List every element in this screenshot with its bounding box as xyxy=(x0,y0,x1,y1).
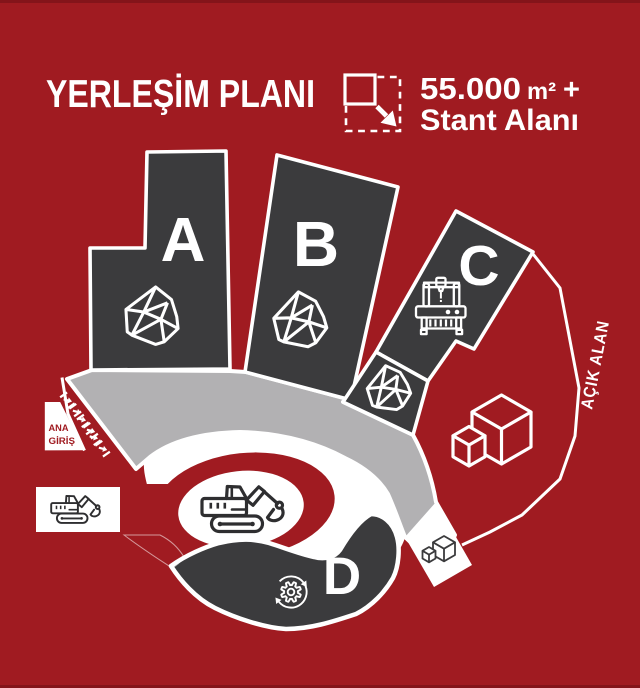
svg-text:55.000: 55.000 xyxy=(420,71,521,106)
svg-text:A: A xyxy=(161,206,206,275)
svg-text:C: C xyxy=(458,234,499,298)
svg-text:YERLEŞİM PLANI: YERLEŞİM PLANI xyxy=(46,73,315,116)
svg-text:m²: m² xyxy=(527,78,556,104)
svg-text:GİRİŞ: GİRİŞ xyxy=(49,436,76,447)
svg-text:ANA: ANA xyxy=(49,423,69,434)
svg-text:+: + xyxy=(563,74,580,106)
svg-text:Stant Alanı: Stant Alanı xyxy=(420,104,579,137)
svg-text:B: B xyxy=(293,208,339,280)
svg-text:D: D xyxy=(323,547,361,606)
